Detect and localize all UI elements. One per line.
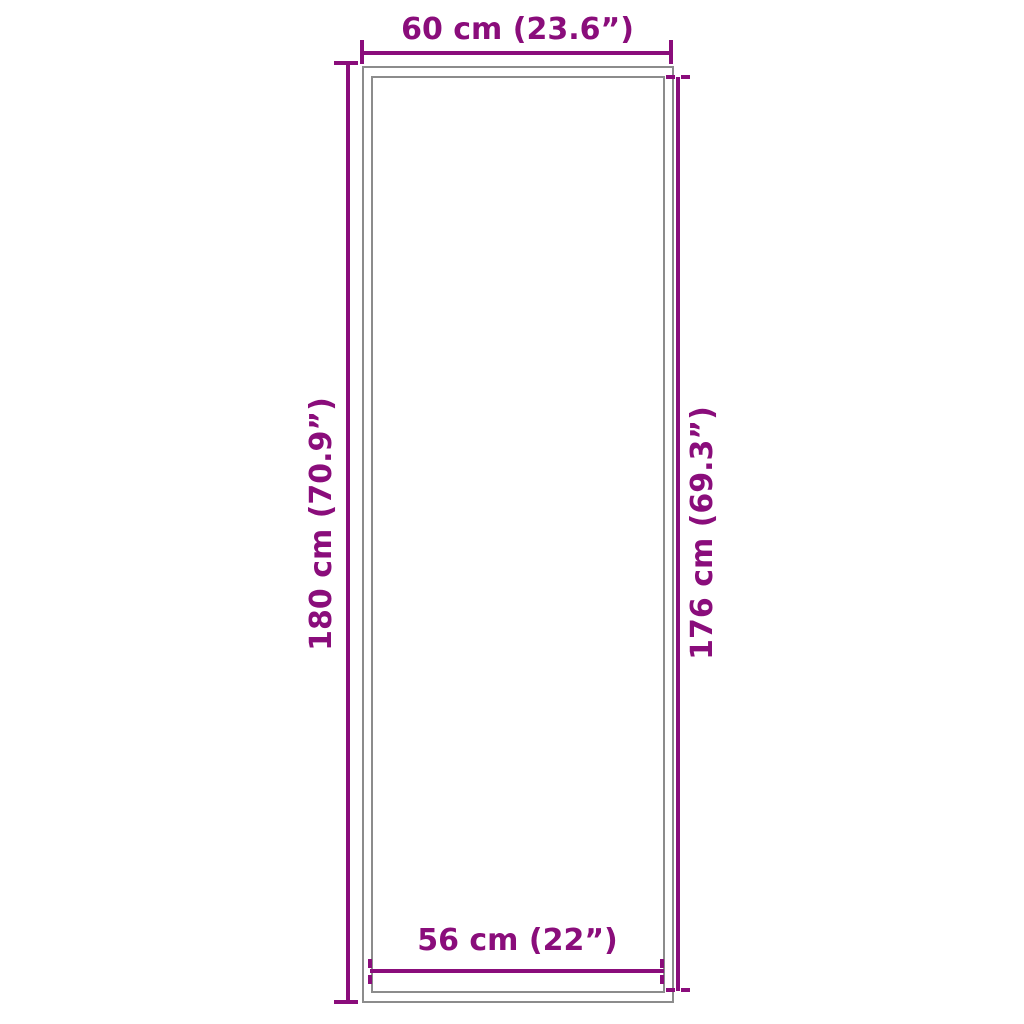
left-dimension-line xyxy=(346,61,350,1004)
bottom-dimension-line xyxy=(370,969,664,973)
left-dimension-bottom-tick xyxy=(334,1000,358,1004)
top-dimension-left-tick xyxy=(360,40,364,64)
right-dimension-top-tick-dash xyxy=(681,75,690,79)
bottom-dimension-left-tick-dash xyxy=(368,959,372,968)
right-dimension-bottom-tick-dash xyxy=(666,988,675,992)
bottom-dimension-right-tick-dash xyxy=(660,975,664,984)
right-dimension-top-tick-dash xyxy=(666,75,675,79)
right-height-label: 176 cm (69.3”) xyxy=(688,406,718,660)
top-width-label: 60 cm (23.6”) xyxy=(362,15,673,45)
mat-inner-outline xyxy=(371,76,665,993)
right-dimension-bottom-tick-dash xyxy=(681,988,690,992)
bottom-width-label: 56 cm (22”) xyxy=(371,926,664,956)
top-dimension-line xyxy=(361,51,673,55)
left-height-label: 180 cm (70.9”) xyxy=(307,397,337,651)
bottom-dimension-left-tick-dash xyxy=(368,975,372,984)
bottom-dimension-right-tick-dash xyxy=(660,959,664,968)
right-dimension-line xyxy=(676,77,680,991)
left-dimension-top-tick xyxy=(334,61,358,65)
dimension-diagram: 60 cm (23.6”) 180 cm (70.9”) 176 cm (69.… xyxy=(0,0,1024,1024)
top-dimension-right-tick xyxy=(669,40,673,64)
